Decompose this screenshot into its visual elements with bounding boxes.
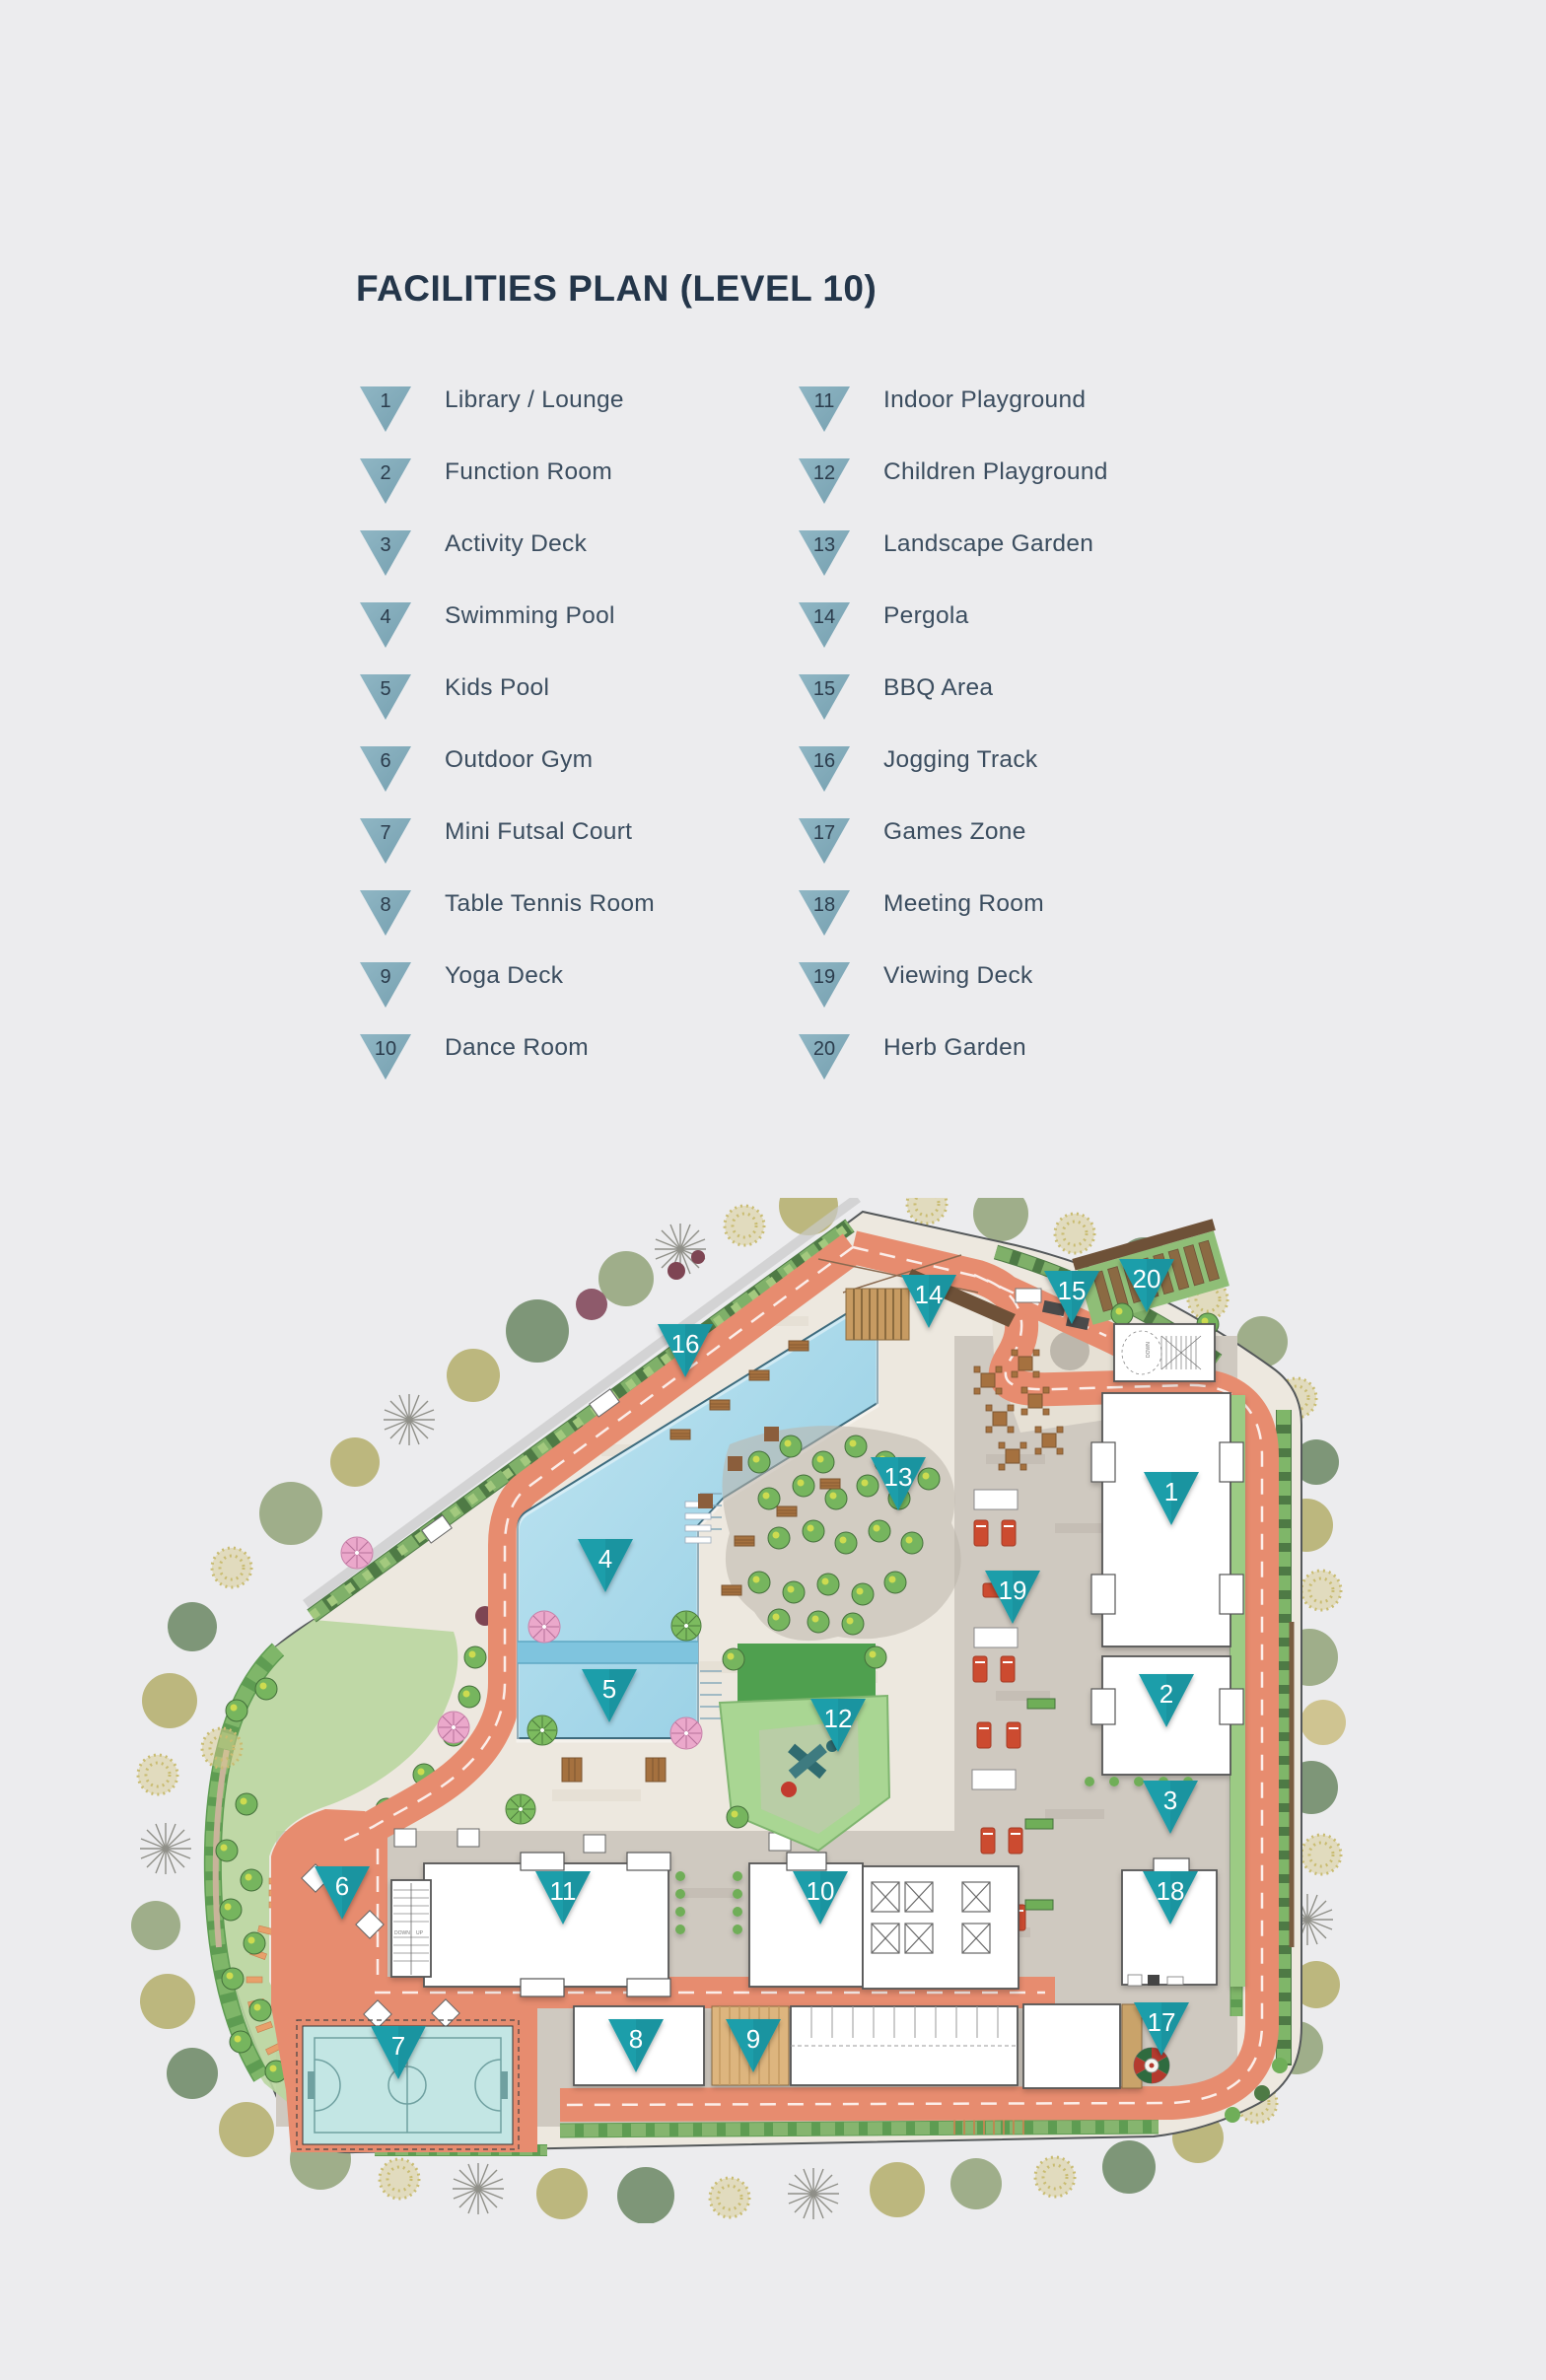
legend-column-right: 11 Indoor Playground 12 Children Playgro…: [797, 380, 1108, 1099]
green-umbrella-icon: [671, 1611, 701, 1641]
map-marker-number: 3: [1163, 1785, 1177, 1815]
legend-item-label: Pergola: [883, 598, 969, 634]
legend-marker-triangle: 15: [797, 670, 852, 722]
map-marker-number: 13: [884, 1462, 913, 1492]
legend-marker-triangle: 1: [358, 383, 413, 434]
legend-marker-triangle: 2: [358, 455, 413, 506]
legend-item-number: 6: [380, 750, 390, 772]
legend-item-number: 3: [380, 534, 390, 556]
legend-item-number: 7: [380, 822, 390, 844]
legend-item-number: 4: [380, 606, 390, 628]
map-marker-number: 7: [391, 2031, 405, 2061]
building-library-lounge: [1102, 1393, 1230, 1646]
legend-marker-triangle: 14: [797, 598, 852, 650]
legend-item: 10 Dance Room: [358, 1027, 797, 1099]
site-plan-map: DOWN DOWN UP: [128, 1198, 1420, 2223]
legend-item: 14 Pergola: [797, 595, 1108, 667]
legend-item-label: Yoga Deck: [445, 958, 563, 994]
legend-item-label: Indoor Playground: [883, 383, 1086, 418]
map-marker-number: 9: [746, 2024, 760, 2054]
map-marker-number: 8: [629, 2024, 643, 2054]
green-umbrella-icon: [527, 1715, 557, 1745]
map-marker-number: 10: [807, 1876, 835, 1906]
stair-label: DOWN: [394, 1930, 410, 1936]
elevator-core: [863, 1866, 1019, 1989]
pool-divider-deck: [518, 1642, 698, 1663]
legend-item: 8 Table Tennis Room: [358, 883, 797, 955]
legend-item-label: Table Tennis Room: [445, 886, 655, 922]
stair-label: DOWN: [1146, 1342, 1152, 1358]
legend-item-number: 10: [375, 1038, 396, 1060]
map-marker-number: 18: [1157, 1876, 1185, 1906]
legend-column-left: 1 Library / Lounge 2 Function Room 3 Act…: [358, 380, 797, 1099]
legend: 1 Library / Lounge 2 Function Room 3 Act…: [358, 380, 1108, 1099]
legend-item-label: Games Zone: [883, 814, 1026, 850]
legend-item-label: Activity Deck: [445, 526, 587, 562]
legend-item: 15 BBQ Area: [797, 667, 1108, 739]
legend-item-number: 2: [380, 462, 390, 484]
map-marker-number: 2: [1159, 1679, 1173, 1709]
map-marker-number: 12: [824, 1704, 853, 1733]
legend-marker-triangle: 18: [797, 886, 852, 938]
legend-item-number: 19: [813, 966, 835, 988]
map-marker-number: 5: [602, 1674, 616, 1704]
legend-item-label: Herb Garden: [883, 1030, 1026, 1066]
map-marker-number: 17: [1148, 2007, 1176, 2037]
legend-marker-triangle: 6: [358, 742, 413, 794]
legend-item: 19 Viewing Deck: [797, 955, 1108, 1027]
stair-core-top: [1114, 1324, 1215, 1381]
legend-item-number: 13: [813, 534, 835, 556]
legend-item-number: 9: [380, 966, 390, 988]
legend-item: 18 Meeting Room: [797, 883, 1108, 955]
site-plan: DOWN DOWN UP: [128, 1198, 1420, 2223]
map-marker-number: 16: [671, 1329, 700, 1359]
page-title: FACILITIES PLAN (LEVEL 10): [356, 268, 877, 310]
legend-marker-triangle: 7: [358, 814, 413, 866]
legend-item-label: Dance Room: [445, 1030, 589, 1066]
legend-item-label: BBQ Area: [883, 670, 993, 706]
pink-umbrella-icon: [670, 1717, 702, 1749]
pink-umbrella-icon: [341, 1537, 373, 1569]
legend-item-label: Children Playground: [883, 455, 1108, 490]
legend-item: 4 Swimming Pool: [358, 595, 797, 667]
legend-item-number: 11: [814, 390, 835, 412]
legend-item: 6 Outdoor Gym: [358, 739, 797, 811]
legend-item-number: 18: [813, 894, 835, 916]
legend-item-number: 17: [813, 822, 835, 844]
map-marker-number: 1: [1164, 1477, 1178, 1506]
games-zone-room: [1023, 2004, 1120, 2088]
legend-marker-triangle: 13: [797, 526, 852, 578]
legend-item-label: Swimming Pool: [445, 598, 615, 634]
map-marker-number: 14: [915, 1280, 944, 1309]
legend-item: 9 Yoga Deck: [358, 955, 797, 1027]
legend-item-number: 14: [813, 606, 835, 628]
legend-item-number: 1: [380, 390, 390, 412]
pink-umbrella-icon: [528, 1611, 560, 1643]
legend-item-number: 16: [813, 750, 835, 772]
legend-item: 5 Kids Pool: [358, 667, 797, 739]
legend-item-label: Meeting Room: [883, 886, 1044, 922]
legend-marker-triangle: 12: [797, 455, 852, 506]
legend-item-label: Kids Pool: [445, 670, 549, 706]
legend-item-label: Function Room: [445, 455, 612, 490]
legend-item-number: 8: [380, 894, 390, 916]
legend-item-label: Mini Futsal Court: [445, 814, 632, 850]
legend-marker-triangle: 3: [358, 526, 413, 578]
map-marker-number: 4: [598, 1544, 612, 1574]
legend-marker-triangle: 10: [358, 1030, 413, 1082]
stair-label: UP: [416, 1930, 424, 1936]
pergola-shape: [846, 1289, 909, 1340]
legend-item: 17 Games Zone: [797, 811, 1108, 883]
legend-marker-triangle: 17: [797, 814, 852, 866]
legend-item: 20 Herb Garden: [797, 1027, 1108, 1099]
legend-item: 2 Function Room: [358, 452, 797, 524]
legend-marker-triangle: 19: [797, 958, 852, 1010]
legend-item-number: 5: [380, 678, 390, 700]
legend-item: 16 Jogging Track: [797, 739, 1108, 811]
pink-umbrella-icon: [438, 1712, 469, 1743]
legend-item-label: Jogging Track: [883, 742, 1037, 778]
map-marker-number: 15: [1058, 1276, 1087, 1305]
legend-marker-triangle: 16: [797, 742, 852, 794]
map-marker-number: 6: [335, 1871, 349, 1901]
map-marker-number: 19: [999, 1575, 1027, 1605]
legend-item-label: Landscape Garden: [883, 526, 1093, 562]
legend-marker-triangle: 8: [358, 886, 413, 938]
legend-marker-triangle: 5: [358, 670, 413, 722]
legend-item: 12 Children Playground: [797, 452, 1108, 524]
map-marker-number: 11: [550, 1876, 577, 1906]
legend-marker-triangle: 4: [358, 598, 413, 650]
legend-marker-triangle: 9: [358, 958, 413, 1010]
legend-item-label: Library / Lounge: [445, 383, 624, 418]
legend-marker-triangle: 20: [797, 1030, 852, 1082]
legend-item-number: 12: [813, 462, 835, 484]
legend-marker-triangle: 11: [797, 383, 852, 434]
dartboard-icon: [1134, 2048, 1169, 2083]
legend-item: 1 Library / Lounge: [358, 380, 797, 452]
legend-item-label: Outdoor Gym: [445, 742, 593, 778]
legend-item-number: 20: [813, 1038, 835, 1060]
map-marker-number: 20: [1133, 1264, 1161, 1294]
legend-item-label: Viewing Deck: [883, 958, 1033, 994]
facilities-plan-page: FACILITIES PLAN (LEVEL 10) 1 Library / L…: [0, 0, 1546, 2380]
legend-item: 11 Indoor Playground: [797, 380, 1108, 452]
legend-item: 3 Activity Deck: [358, 524, 797, 595]
legend-item: 13 Landscape Garden: [797, 524, 1108, 595]
legend-item-number: 15: [813, 678, 835, 700]
legend-item: 7 Mini Futsal Court: [358, 811, 797, 883]
